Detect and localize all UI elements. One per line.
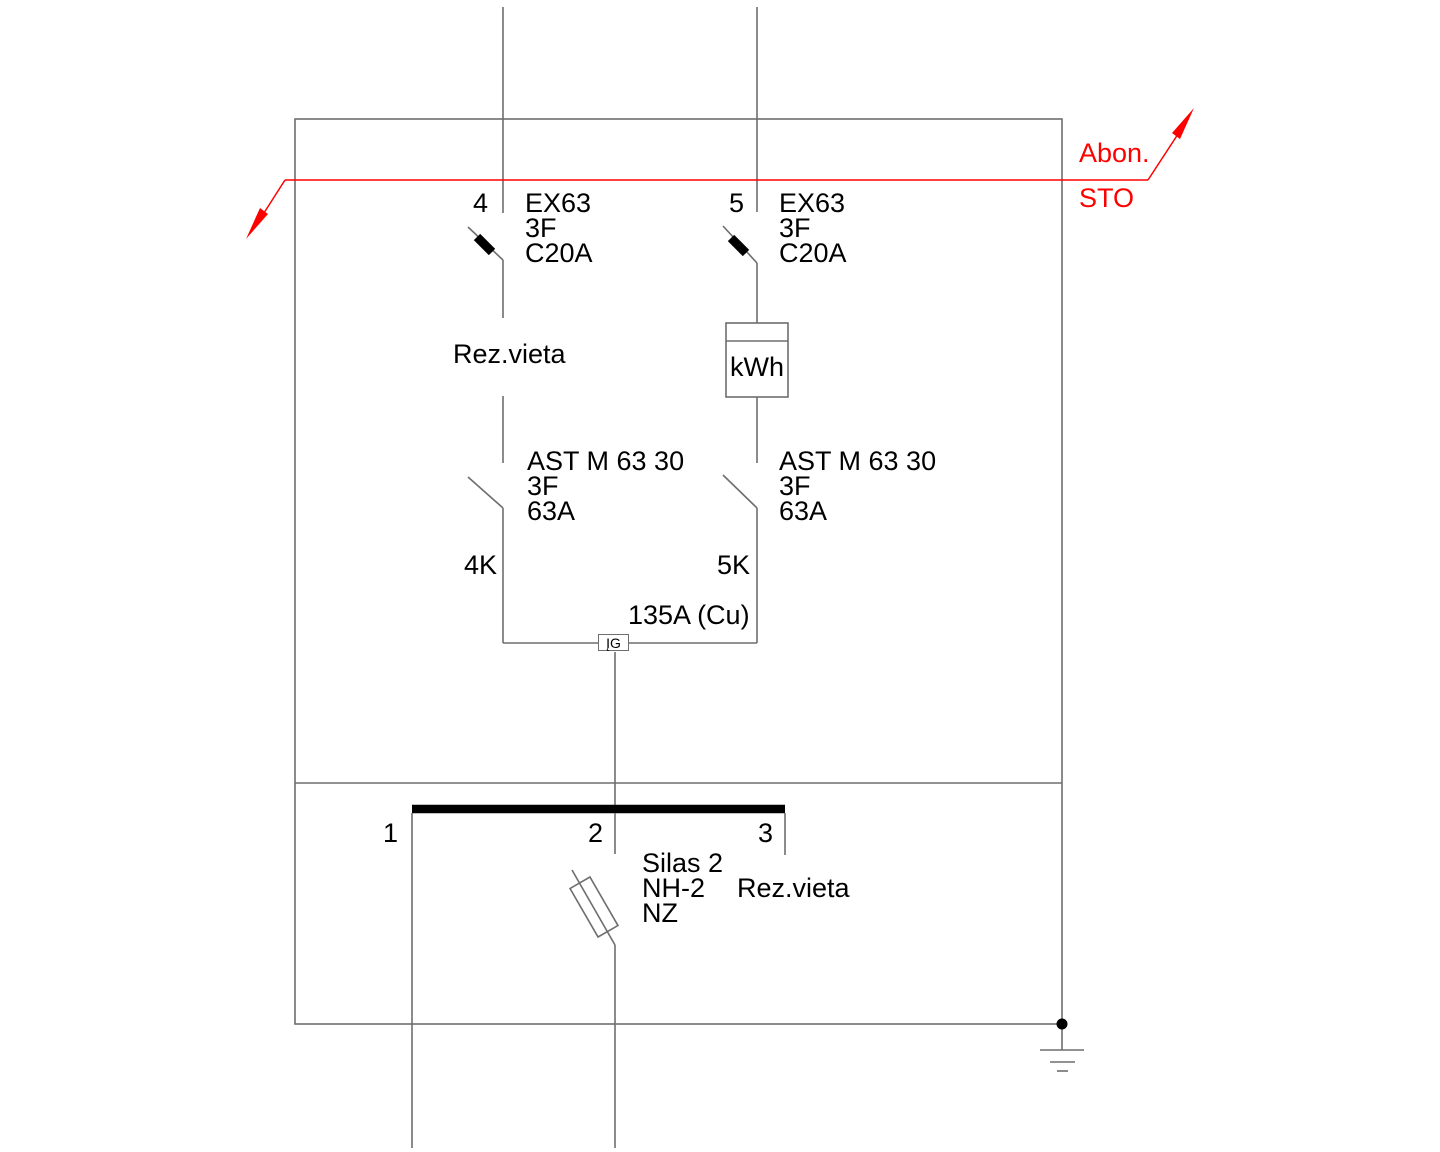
arrow-left-icon — [246, 208, 268, 239]
earthing-graphics — [1040, 1024, 1084, 1071]
feeder5-switch-rating: 63A — [779, 499, 936, 524]
main-switch-box: ĮG — [598, 634, 629, 651]
outgoing3-number: 3 — [758, 821, 773, 846]
feeder4-switch-rating: 63A — [527, 499, 684, 524]
supply-label-abon: Abon. — [1079, 141, 1150, 166]
arrow-right-icon — [1172, 108, 1194, 139]
feeder5-number: 5 — [729, 191, 744, 216]
feeder5-switch-label: AST M 63 30 3F 63A — [779, 449, 936, 524]
feeder5-switch-blade — [723, 475, 757, 508]
outgoing-graphics — [412, 813, 785, 1148]
supply-right-diagonal — [1148, 131, 1180, 180]
single-line-diagram: 4 EX63 3F C20A Rez.vieta 5 EX63 3F C20A … — [0, 0, 1440, 1152]
outgoing2-fuse-label: Silas 2 NH-2 NZ — [642, 851, 723, 926]
fuse-rating: NZ — [642, 901, 723, 926]
feeder4-switch-label: AST M 63 30 3F 63A — [527, 449, 684, 524]
feeder5-breaker-rating: C20A — [779, 241, 847, 266]
feeder4-note: Rez.vieta — [453, 342, 566, 367]
supply-label-sto: STO — [1079, 186, 1134, 211]
feeder4-breaker-rating: C20A — [525, 241, 593, 266]
feeder5-graphics — [723, 7, 788, 643]
feeder5-tag: 5K — [717, 553, 750, 578]
outgoing3-note: Rez.vieta — [737, 876, 850, 901]
feeder4-breaker-label: EX63 3F C20A — [525, 191, 593, 266]
feeder5-breaker-body-icon — [731, 238, 746, 253]
kwh-meter-label: kWh — [726, 355, 788, 380]
feeder4-tag: 4K — [464, 553, 497, 578]
feeder4-number: 4 — [473, 191, 488, 216]
outgoing2-number: 2 — [588, 821, 603, 846]
feeder4-switch-blade — [468, 477, 503, 508]
tie-graphics — [503, 643, 757, 805]
outgoing1-number: 1 — [383, 821, 398, 846]
junction-dot-icon — [1057, 1019, 1068, 1030]
feeder4-breaker-body-icon — [477, 237, 492, 252]
feeder4-graphics — [468, 7, 503, 643]
supply-marker — [255, 131, 1180, 227]
tie-conductor-rating: 135A (Cu) — [628, 603, 750, 628]
main-switch-label: ĮG — [606, 636, 621, 650]
feeder5-breaker-label: EX63 3F C20A — [779, 191, 847, 266]
outgoing2-fuse-blade — [572, 870, 615, 945]
